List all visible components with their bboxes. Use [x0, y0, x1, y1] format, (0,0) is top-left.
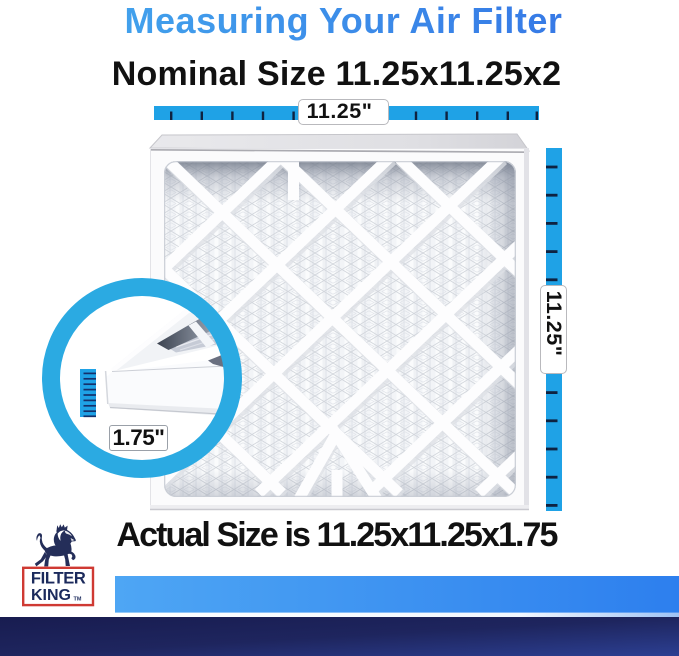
svg-text:TM: TM — [74, 597, 82, 603]
svg-text:KING: KING — [31, 587, 71, 604]
svg-text:FILTER: FILTER — [31, 570, 86, 588]
